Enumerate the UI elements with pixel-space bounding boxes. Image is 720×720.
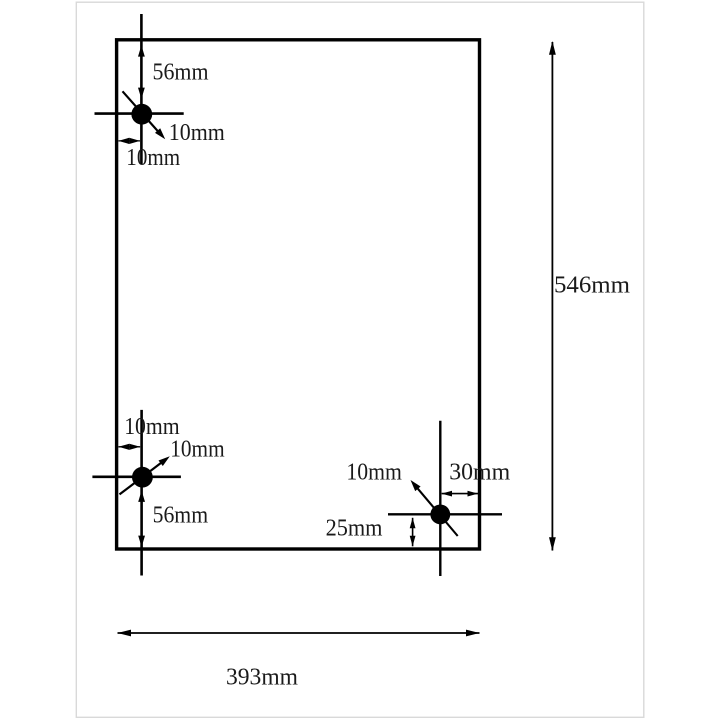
svg-text:10mm: 10mm xyxy=(346,459,402,485)
svg-text:25mm: 25mm xyxy=(326,516,383,542)
svg-text:393mm: 393mm xyxy=(226,665,298,691)
svg-text:546mm: 546mm xyxy=(554,273,630,299)
svg-text:10mm: 10mm xyxy=(170,436,225,462)
svg-text:56mm: 56mm xyxy=(153,60,209,86)
svg-text:30mm: 30mm xyxy=(449,459,510,485)
svg-text:56mm: 56mm xyxy=(153,503,209,529)
svg-text:10mm: 10mm xyxy=(169,120,225,146)
svg-text:10mm: 10mm xyxy=(126,145,180,171)
